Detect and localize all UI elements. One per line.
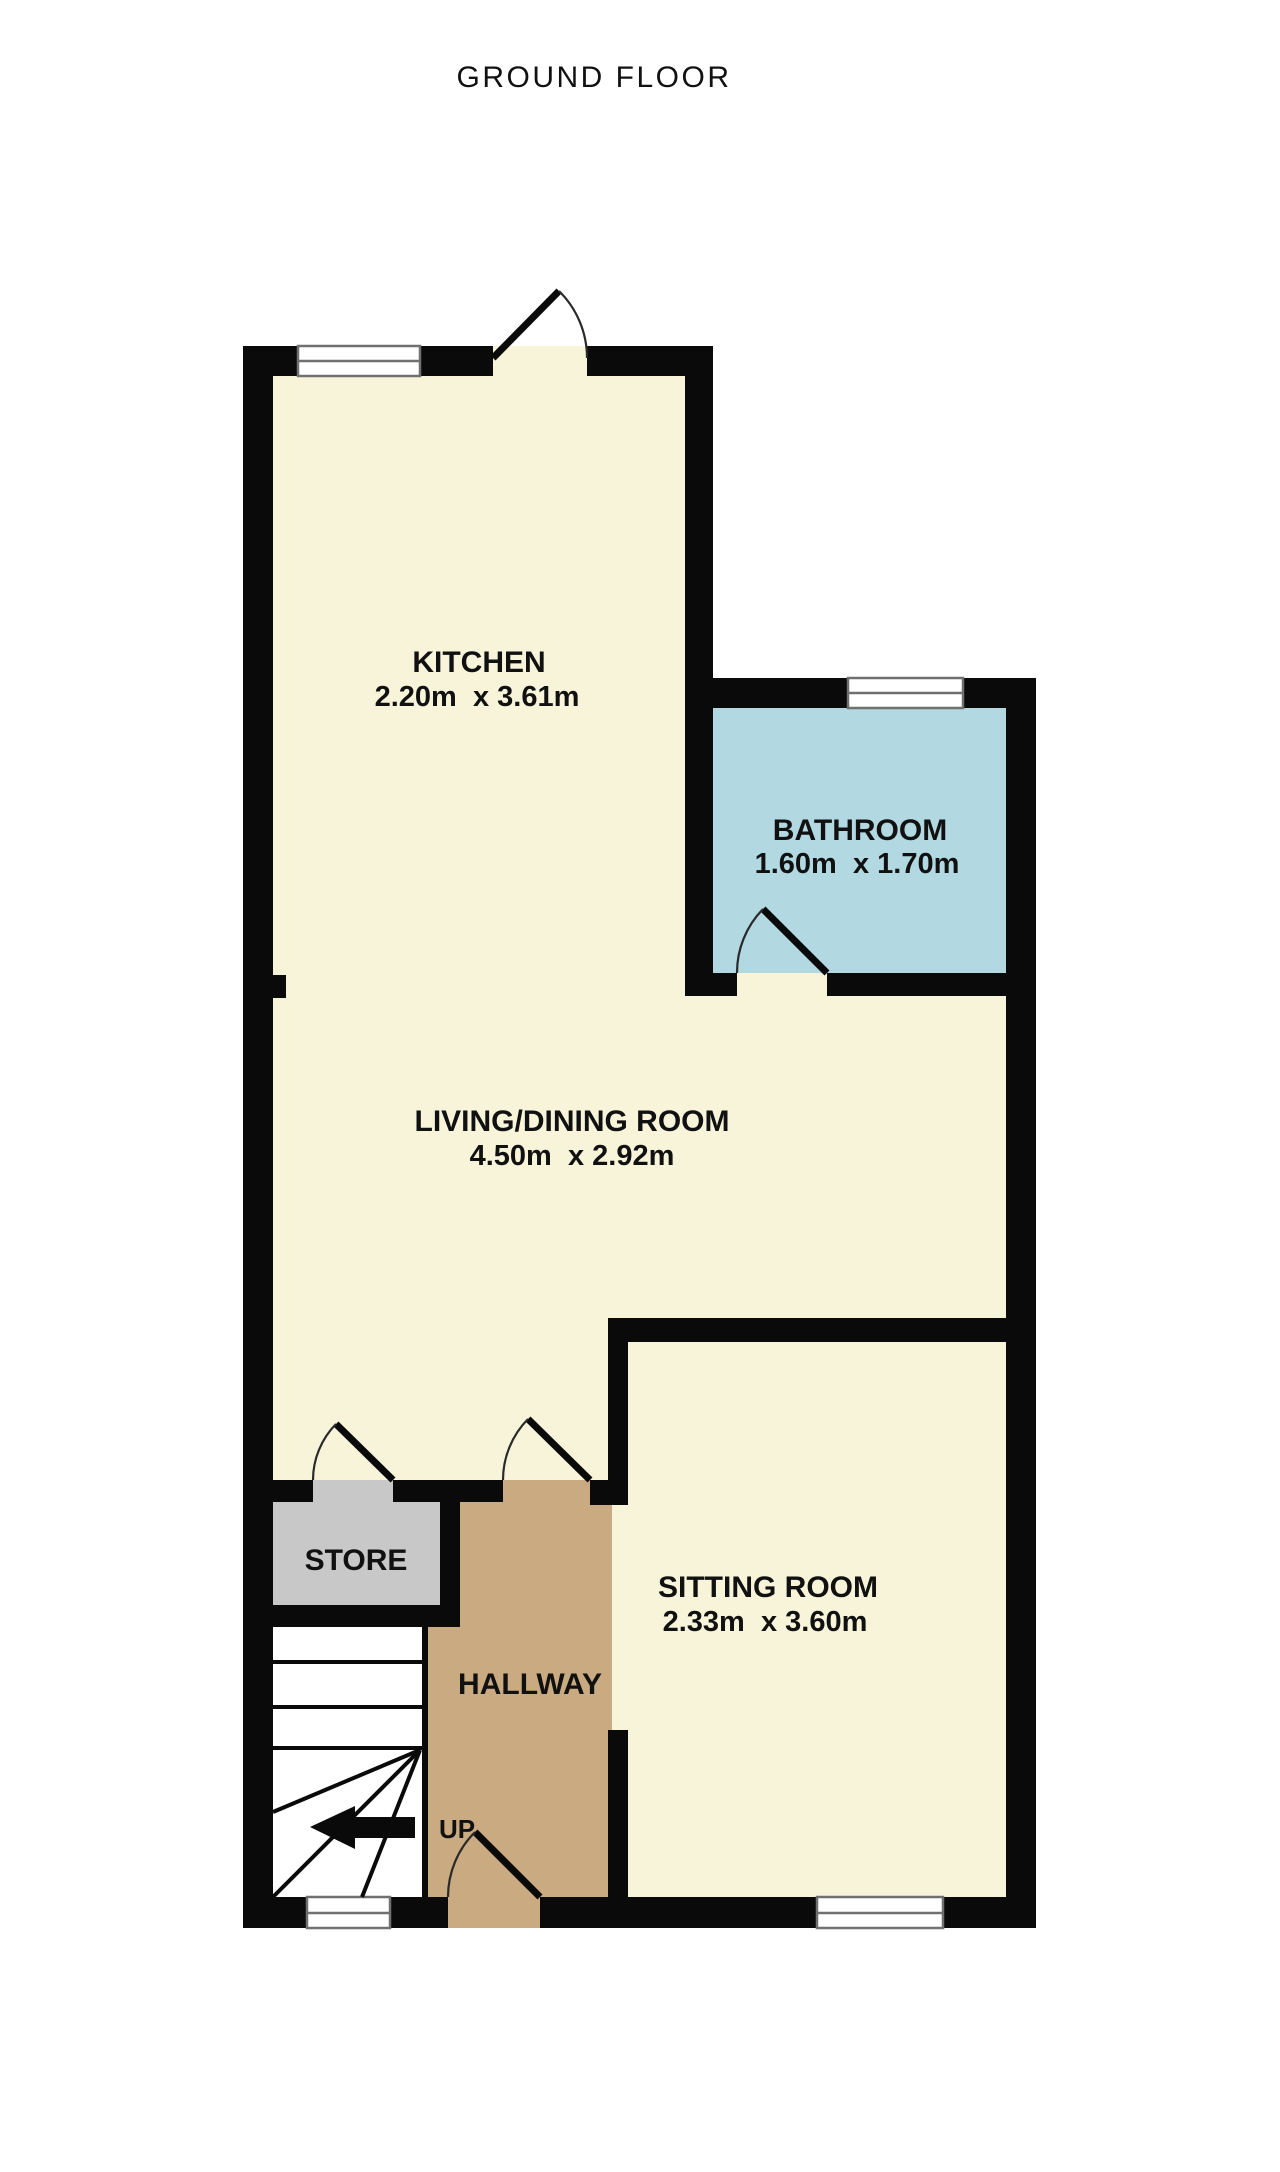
store-label: STORE xyxy=(305,1544,408,1577)
sitting-room-dimensions: 2.33m x 3.60m xyxy=(663,1606,868,1638)
wall-sitting-top xyxy=(608,1318,1036,1342)
stair-up-label: UP xyxy=(439,1814,475,1844)
back-door-threshold xyxy=(493,346,587,376)
stairs-window xyxy=(307,1897,390,1928)
floor-title: GROUND FLOOR xyxy=(456,61,731,94)
wall-stairs-right-thin xyxy=(422,1627,428,1897)
kitchen-dimensions: 2.20m x 3.61m xyxy=(375,681,580,713)
bathroom-dimensions: 1.60m x 1.70m xyxy=(755,848,960,880)
wall-sitting-left-upper xyxy=(608,1318,628,1505)
wall-sitting-left-lower xyxy=(608,1730,628,1897)
sitting-room-window xyxy=(817,1897,943,1928)
wall-left-exterior xyxy=(243,346,273,1928)
store-door-threshold xyxy=(313,1480,393,1502)
floorplan-page: GROUND FLOOR xyxy=(0,0,1280,2172)
wall-kitchen-right xyxy=(685,346,713,996)
wall-kitchen-living-stub xyxy=(273,975,286,998)
living-dining-floor-lower xyxy=(273,1318,608,1480)
wall-store-bottom xyxy=(243,1605,460,1627)
kitchen-label: KITCHEN xyxy=(412,646,545,679)
bathroom-window xyxy=(848,678,963,708)
bathroom-label: BATHROOM xyxy=(773,814,947,847)
stairs-floor xyxy=(273,1627,422,1897)
sitting-room-label: SITTING ROOM xyxy=(658,1571,878,1604)
hallway-door-threshold xyxy=(503,1480,590,1502)
living-dining-label: LIVING/DINING ROOM xyxy=(415,1105,730,1138)
ground-floor-plan: GROUND FLOOR xyxy=(0,0,1280,2172)
hallway-floor-upper xyxy=(460,1502,612,1627)
sitting-room-doorway-strip xyxy=(612,1505,628,1730)
bathroom-door-threshold xyxy=(737,973,827,996)
living-dining-dimensions: 4.50m x 2.92m xyxy=(470,1140,675,1172)
wall-right-exterior xyxy=(1006,678,1036,1928)
kitchen-window xyxy=(298,346,420,376)
hallway-label: HALLWAY xyxy=(458,1668,602,1701)
front-door-threshold xyxy=(448,1897,540,1928)
